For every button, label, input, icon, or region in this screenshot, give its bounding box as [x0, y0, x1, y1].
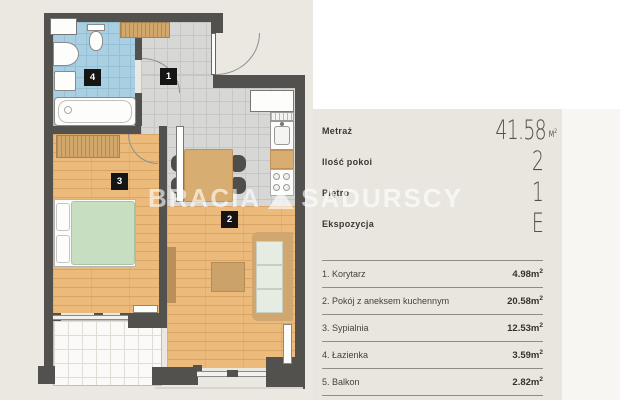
- room-label: 4. Łazienka: [322, 350, 368, 360]
- room-row: 5. Balkon 2.82m2: [322, 369, 543, 396]
- wall-left-foot: [38, 366, 55, 384]
- summary-label: Ilość pokoi: [322, 157, 372, 167]
- sofa-cushion: [256, 241, 283, 265]
- room-area: 4.98m2: [512, 268, 543, 280]
- bed-duvet: [71, 201, 135, 265]
- room-tag-hallway: 1: [160, 68, 177, 85]
- coffee-table: [211, 262, 245, 292]
- summary-label: Ekspozycja: [322, 219, 374, 229]
- area-unit: M2: [549, 130, 557, 140]
- room-list: 1. Korytarz 4.98m2 2. Pokój z aneksem ku…: [322, 260, 543, 396]
- wall-right: [295, 75, 305, 389]
- window-bedroom-balcony: [53, 315, 128, 320]
- brand-left: BRACIA: [148, 183, 261, 214]
- kitchen-drainer: [270, 112, 294, 121]
- wall-entry-nub: [211, 22, 223, 33]
- tv-board: [167, 247, 176, 303]
- listing-image: 1 2 3 4 Metraż 41.58M2 Ilość pokoi 2 Pię…: [0, 0, 620, 400]
- sofa-cushion: [256, 289, 283, 313]
- bedroom-wardrobe: [56, 135, 120, 158]
- details-panel: Metraż 41.58M2 Ilość pokoi 2 Piętro 1 Ek…: [313, 109, 562, 400]
- summary-value: 41.58M2: [495, 115, 557, 146]
- kitchen-sink-bowl: [274, 126, 290, 145]
- radiator-bedroom: [133, 305, 158, 313]
- room-label: 3. Sypialnia: [322, 323, 369, 333]
- wall-niche: [50, 18, 77, 35]
- summary-row-area: Metraż 41.58M2: [322, 115, 543, 146]
- room-area: 20.58m2: [507, 295, 543, 307]
- room-area: 3.59m2: [512, 349, 543, 361]
- bed-pillow: [56, 203, 70, 231]
- header-white-block: [313, 0, 620, 109]
- room-tag-bedroom: 3: [111, 173, 128, 190]
- room-row: 2. Pokój z aneksem kuchennym 20.58m2: [322, 288, 543, 315]
- washing-machine: [54, 71, 76, 91]
- summary-value: 1: [532, 177, 543, 208]
- wall-left: [44, 13, 53, 373]
- room-label: 5. Balkon: [322, 377, 360, 387]
- summary-row-rooms: Ilość pokoi 2: [322, 146, 543, 177]
- kitchen-cabinet: [270, 150, 294, 169]
- wall-entry-jog: [213, 75, 305, 88]
- bathroom-sink: [53, 42, 79, 66]
- window-post-mid: [227, 370, 238, 377]
- right-margin-strip: [562, 109, 620, 400]
- wall-bedroom-balcony-block: [128, 313, 167, 328]
- wall-bath-bedroom: [44, 126, 141, 134]
- hallway-wardrobe: [120, 22, 170, 38]
- toilet-tank: [87, 24, 105, 31]
- room-label: 1. Korytarz: [322, 269, 366, 279]
- room-area: 12.53m2: [507, 322, 543, 334]
- summary-value: E: [532, 208, 543, 239]
- stove-burner: [273, 173, 280, 180]
- entrance-door-arc: [216, 33, 260, 75]
- brand-right: SADURSCY: [301, 183, 463, 214]
- summary-value: 2: [532, 146, 543, 177]
- summary-label: Metraż: [322, 126, 352, 136]
- wall-bedroom-living: [159, 126, 167, 318]
- room-label: 2. Pokój z aneksem kuchennym: [322, 296, 449, 306]
- radiator-livingroom: [283, 324, 292, 364]
- toilet-bowl: [89, 31, 103, 51]
- wall-bottom-left-block: [152, 367, 198, 385]
- dining-chair: [233, 155, 246, 172]
- brand-watermark: BRACIA SADURSCY: [148, 183, 463, 214]
- sofa-cushion: [256, 265, 283, 289]
- hallway-closet: [250, 90, 294, 112]
- bed-pillow: [56, 235, 70, 263]
- room-row: 4. Łazienka 3.59m2: [322, 342, 543, 369]
- room-area: 2.82m2: [512, 376, 543, 388]
- window-sill-line: [155, 387, 303, 389]
- room-tag-bathroom: 4: [84, 69, 101, 86]
- stove-burner: [283, 173, 290, 180]
- balcony-floor: [53, 320, 162, 386]
- bathtub-drain: [64, 106, 72, 114]
- kitchen-faucet: [280, 122, 284, 126]
- wall-bath-right-lower: [135, 93, 142, 126]
- brand-triangle-logo-icon: [268, 189, 294, 209]
- room-row: 1. Korytarz 4.98m2: [322, 261, 543, 288]
- room-row: 3. Sypialnia 12.53m2: [322, 315, 543, 342]
